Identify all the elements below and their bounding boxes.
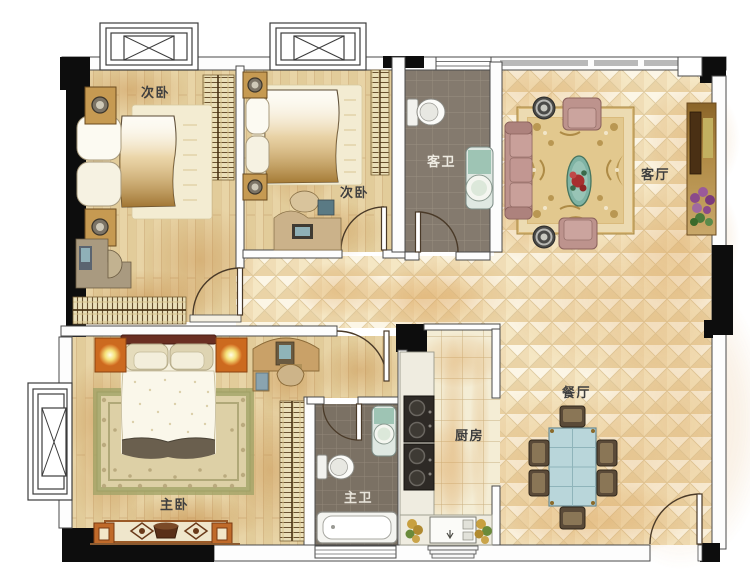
svg-text:次卧: 次卧 (340, 185, 369, 200)
svg-text:客卫: 客卫 (427, 154, 456, 169)
svg-text:主卫: 主卫 (344, 490, 373, 505)
svg-text:次卧: 次卧 (141, 85, 170, 100)
svg-text:客厅: 客厅 (641, 167, 670, 182)
svg-text:主卧: 主卧 (160, 497, 189, 512)
svg-text:厨房: 厨房 (455, 428, 484, 443)
svg-text:餐厅: 餐厅 (561, 385, 591, 400)
